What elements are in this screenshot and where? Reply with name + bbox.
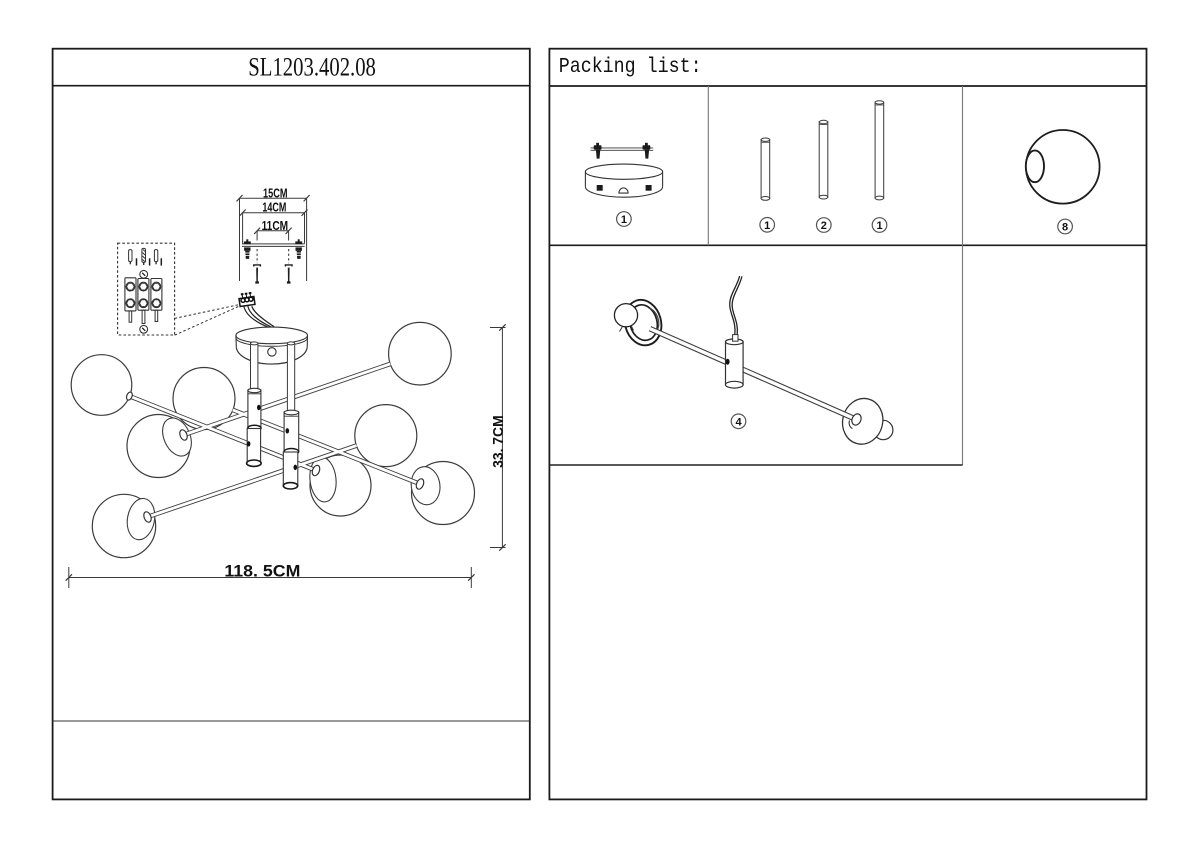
svg-text:2: 2 [821,220,827,232]
svg-text:SL1203.402.08: SL1203.402.08 [248,53,376,82]
svg-text:8: 8 [1062,222,1068,234]
svg-text:1: 1 [764,220,770,232]
svg-text:4: 4 [735,416,742,428]
svg-text:15CM: 15CM [263,185,288,200]
svg-text:Packing list:: Packing list: [559,55,702,79]
svg-text:11CM: 11CM [262,218,289,233]
svg-text:1: 1 [876,220,882,232]
svg-text:14CM: 14CM [262,200,286,215]
svg-text:33. 7CM: 33. 7CM [490,415,507,468]
svg-text:118. 5CM: 118. 5CM [224,562,300,581]
svg-text:1: 1 [621,214,627,226]
